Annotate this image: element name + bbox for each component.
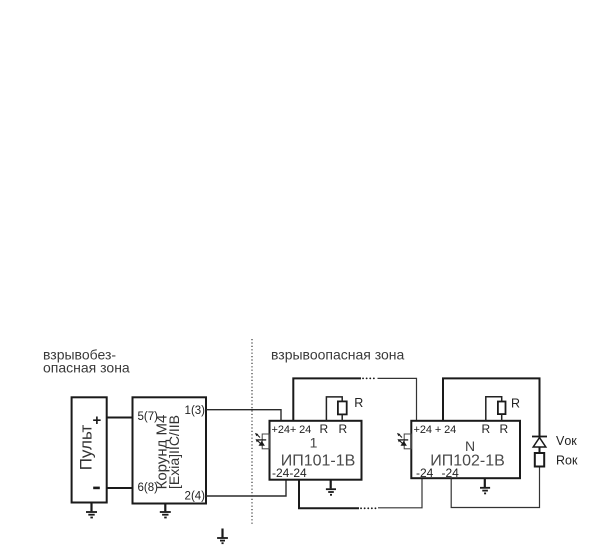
svg-text:Пульт: Пульт xyxy=(77,425,96,471)
svg-text:1: 1 xyxy=(310,435,318,451)
svg-text:+24 + 24: +24 + 24 xyxy=(414,424,457,436)
svg-text:[Exia]IIC/IIB: [Exia]IIC/IIB xyxy=(166,415,182,489)
svg-text:R: R xyxy=(354,396,363,410)
svg-text:взрывоопасная зона: взрывоопасная зона xyxy=(271,347,405,363)
svg-text:1(3): 1(3) xyxy=(185,405,206,417)
svg-text:R: R xyxy=(500,422,509,436)
svg-text:+24+ 24: +24+ 24 xyxy=(272,424,312,436)
svg-text:-24-24: -24-24 xyxy=(272,466,307,480)
svg-text:-24: -24 xyxy=(416,466,434,480)
svg-text:R: R xyxy=(482,422,491,436)
svg-text:Vок: Vок xyxy=(556,434,577,448)
svg-text:R: R xyxy=(339,422,348,436)
svg-text:Rок: Rок xyxy=(556,454,578,468)
svg-text:2(4): 2(4) xyxy=(185,491,206,503)
svg-text:опасная зона: опасная зона xyxy=(43,360,130,376)
svg-text:-24: -24 xyxy=(442,466,460,480)
svg-text:R: R xyxy=(511,397,520,411)
svg-text:R: R xyxy=(320,422,329,436)
